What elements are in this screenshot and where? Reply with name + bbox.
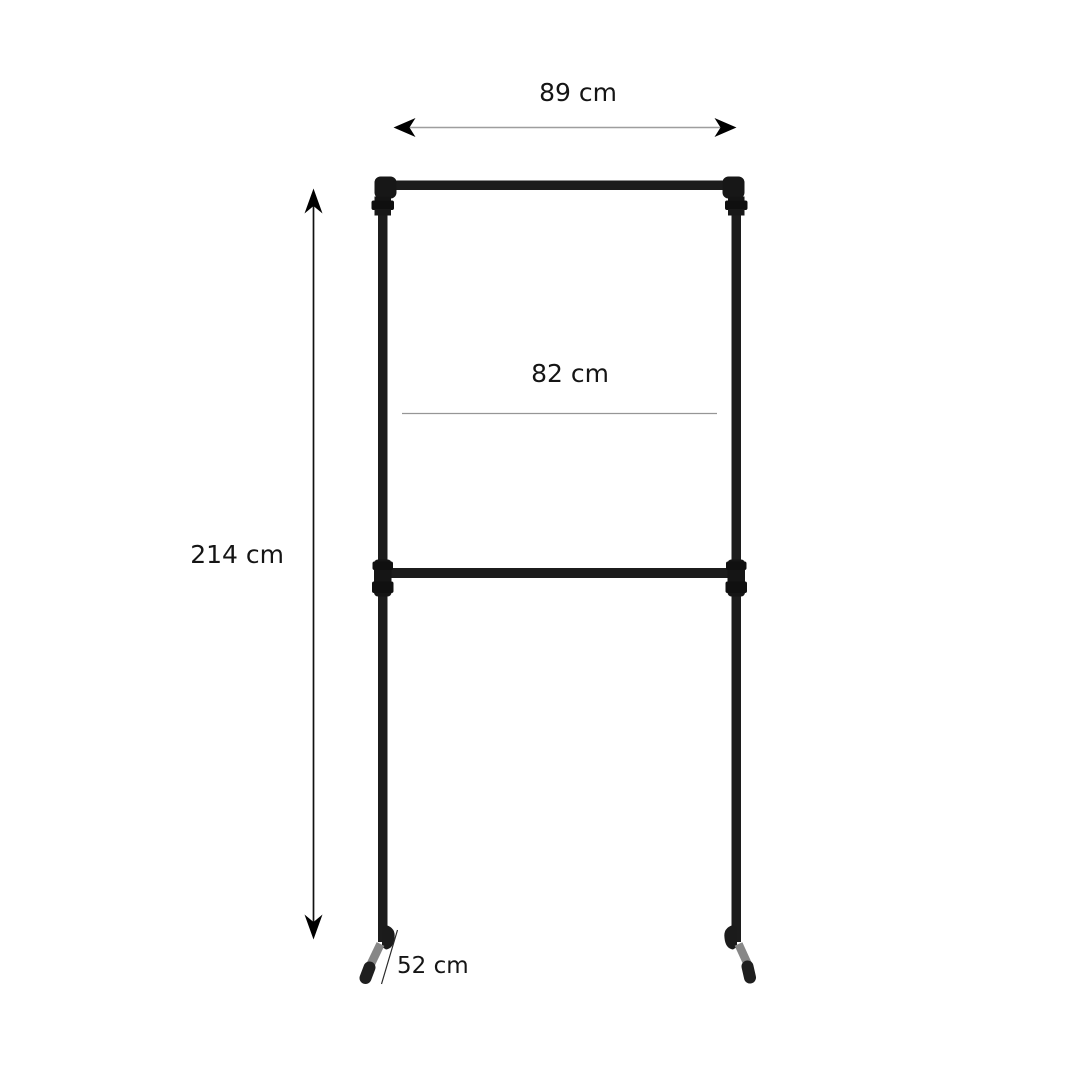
left-tee-fitting	[372, 560, 394, 597]
top-left-elbow-fitting	[375, 177, 397, 199]
inner-width-dimension-label: 82 cm	[470, 359, 670, 389]
left-foot-cap	[366, 968, 370, 979]
top-right-elbow-fitting	[723, 177, 745, 199]
left-coupling-fitting	[372, 197, 395, 216]
top-width-dimension-label: 89 cm	[478, 78, 678, 108]
rack-frame	[366, 177, 751, 979]
frame-pipes	[383, 185, 737, 942]
height-dimension-label: 214 cm	[134, 540, 284, 570]
depth-dimension-label: 52 cm	[397, 952, 469, 980]
right-tee-fitting	[726, 560, 748, 597]
height-dimension-arrow	[305, 189, 323, 940]
middle-rail	[386, 568, 732, 578]
right-foot-cap	[748, 967, 751, 978]
clothes-rack-illustration	[0, 0, 1074, 1074]
product-dimension-diagram: 89 cm 82 cm 214 cm 52 cm	[0, 0, 1074, 1074]
top-width-dimension-arrow	[394, 118, 737, 137]
right-coupling-fitting	[725, 197, 748, 216]
